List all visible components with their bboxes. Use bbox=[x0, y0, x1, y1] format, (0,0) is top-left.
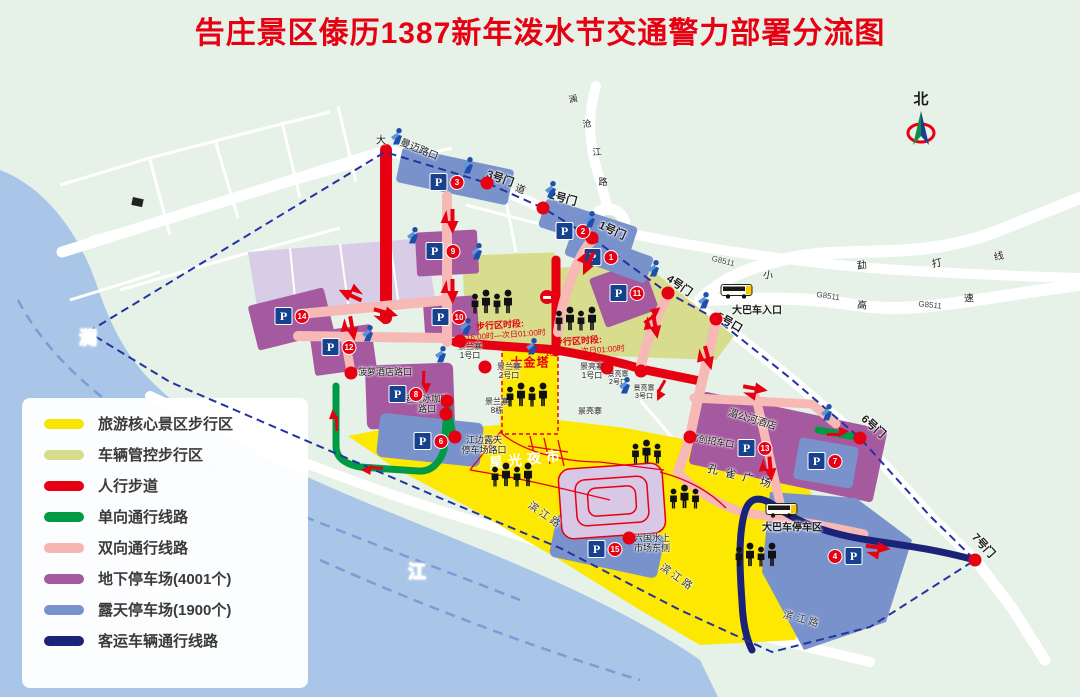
parking-number-badge: 15 bbox=[608, 542, 623, 557]
parking-sign-icon: P bbox=[430, 173, 448, 191]
parking-sign-icon: P bbox=[389, 385, 407, 403]
map-label: 打 bbox=[931, 258, 943, 271]
parking-marker-p4: P4 bbox=[828, 547, 863, 565]
checkpoint-dot bbox=[449, 431, 462, 444]
map-label: 滨江路 bbox=[658, 562, 696, 594]
parking-sign-icon: P bbox=[556, 222, 574, 240]
parking-marker-p15: P15 bbox=[588, 540, 623, 558]
map-label: 江边露天 停车场路口 bbox=[461, 435, 506, 455]
traffic-police-icon bbox=[617, 377, 633, 400]
pedestrian-crowd-icon bbox=[629, 440, 668, 471]
map-label: 高 bbox=[856, 300, 867, 312]
checkpoint-dot bbox=[684, 431, 697, 444]
parking-marker-p14: P14 bbox=[275, 307, 310, 325]
page-title: 告庄景区傣历1387新年泼水节交通警力部署分流图 bbox=[0, 8, 1080, 52]
map-label: 勐 bbox=[856, 260, 868, 273]
map-label: 速 bbox=[964, 293, 975, 305]
traffic-police-icon bbox=[582, 211, 598, 234]
checkpoint-dot bbox=[481, 177, 494, 190]
map-label: 六国水上 市场东侧 bbox=[634, 533, 670, 553]
legend-item: 单向通行线路 bbox=[30, 501, 302, 532]
pedestrian-crowd-icon bbox=[488, 463, 538, 494]
legend-swatch bbox=[44, 481, 84, 491]
map-label: 大巴车入口 bbox=[732, 305, 782, 316]
map-label: 景亮寨 bbox=[578, 408, 602, 417]
traffic-police-icon bbox=[469, 243, 485, 266]
map-label: G8511 bbox=[816, 291, 840, 303]
legend-swatch bbox=[44, 512, 84, 522]
traffic-police-icon bbox=[524, 338, 540, 361]
legend-label: 地下停车场(4001个) bbox=[98, 568, 231, 589]
map-label: 菠萝酒店路口 bbox=[358, 367, 412, 377]
map-label: 江 bbox=[592, 147, 602, 158]
bus-icon bbox=[720, 282, 754, 305]
map-label: 路 bbox=[598, 177, 607, 187]
map-label: G8511 bbox=[711, 255, 736, 269]
legend-swatch bbox=[44, 450, 84, 460]
pedestrian-crowd-icon bbox=[503, 383, 553, 414]
two-way-arrow-icon bbox=[738, 378, 772, 410]
map-canvas: 曼迈路口大道澜江澜沧江路G8511G8511G8511勐打线小高速滨江路滨江路滨… bbox=[0, 0, 1080, 697]
parking-number-badge: 14 bbox=[295, 309, 310, 324]
map-label: 澜 bbox=[79, 328, 97, 348]
parking-sign-icon: P bbox=[275, 307, 293, 325]
one-way-arrow-icon bbox=[414, 370, 435, 395]
parking-sign-icon: P bbox=[588, 540, 606, 558]
legend-label: 车辆管控步行区 bbox=[98, 444, 203, 465]
legend-label: 旅游核心景区步行区 bbox=[98, 413, 233, 434]
legend-item: 客运车辆通行线路 bbox=[30, 625, 302, 656]
two-way-arrow-icon bbox=[333, 271, 372, 308]
traffic-police-icon bbox=[405, 227, 421, 250]
legend-label: 露天停车场(1900个) bbox=[98, 599, 231, 620]
one-way-arrow-icon bbox=[326, 408, 347, 433]
pedestrian-crowd-icon bbox=[468, 290, 518, 321]
map-label: 滨江路 bbox=[782, 610, 823, 631]
parking-sign-icon: P bbox=[414, 432, 432, 450]
legend-swatch bbox=[44, 574, 84, 584]
legend-label: 单向通行线路 bbox=[98, 506, 188, 527]
legend-swatch bbox=[44, 419, 84, 429]
pedestrian-crowd-icon bbox=[732, 543, 782, 574]
checkpoint-dot bbox=[479, 361, 492, 374]
parking-number-badge: 9 bbox=[446, 244, 461, 259]
legend-swatch bbox=[44, 605, 84, 615]
map-label: 道 bbox=[513, 183, 526, 197]
map-label: 大 bbox=[376, 135, 386, 146]
legend: 旅游核心景区步行区车辆管控步行区人行步道单向通行线路双向通行线路地下停车场(40… bbox=[30, 408, 302, 656]
legend-label: 双向通行线路 bbox=[98, 537, 188, 558]
checkpoint-dot bbox=[662, 287, 675, 300]
legend-label: 客运车辆通行线路 bbox=[98, 630, 218, 651]
parking-number-badge: 13 bbox=[758, 441, 773, 456]
traffic-police-icon bbox=[543, 181, 559, 204]
parking-sign-icon: P bbox=[610, 284, 628, 302]
north-label: 北 bbox=[898, 88, 944, 109]
traffic-police-icon bbox=[646, 260, 662, 283]
parking-sign-icon: P bbox=[432, 308, 450, 326]
checkpoint-dot bbox=[635, 365, 648, 378]
parking-number-badge: 7 bbox=[828, 454, 843, 469]
map-label: 滨江路 bbox=[526, 500, 564, 532]
two-way-arrow-icon bbox=[750, 454, 780, 486]
compass-icon bbox=[901, 109, 941, 151]
legend-item: 地下停车场(4001个) bbox=[30, 563, 302, 594]
legend-swatch bbox=[44, 636, 84, 646]
legend-item: 双向通行线路 bbox=[30, 532, 302, 563]
legend-item: 旅游核心景区步行区 bbox=[30, 408, 302, 439]
parking-sign-icon: P bbox=[738, 439, 756, 457]
map-label: 湄公河酒店 bbox=[726, 407, 777, 432]
map-label: 澜 bbox=[568, 93, 579, 105]
two-way-arrow-icon bbox=[434, 207, 461, 237]
parking-marker-p11: P11 bbox=[610, 284, 645, 302]
parking-marker-p6: P6 bbox=[414, 432, 449, 450]
map-label: 线 bbox=[993, 250, 1005, 263]
traffic-police-icon bbox=[696, 292, 712, 315]
parking-sign-icon: P bbox=[808, 452, 826, 470]
map-label: 江 bbox=[408, 562, 426, 582]
checkpoint-dot bbox=[441, 395, 454, 408]
traffic-police-icon bbox=[433, 346, 449, 369]
legend-label: 人行步道 bbox=[98, 475, 158, 496]
checkpoint-dot bbox=[969, 554, 982, 567]
pedestrian-crowd-icon bbox=[667, 485, 706, 516]
two-way-arrow-icon bbox=[861, 538, 894, 569]
map-label: 小 bbox=[762, 270, 774, 283]
legend-item: 人行步道 bbox=[30, 470, 302, 501]
traffic-police-icon bbox=[460, 157, 476, 180]
north-indicator: 北 bbox=[898, 88, 944, 156]
traffic-police-icon bbox=[458, 318, 474, 341]
checkpoint-dot bbox=[345, 367, 358, 380]
parking-marker-p9: P9 bbox=[426, 242, 461, 260]
map-label: G8511 bbox=[918, 300, 942, 311]
parking-sign-icon: P bbox=[426, 242, 444, 260]
checkpoint-dot bbox=[854, 432, 867, 445]
checkpoint-dot bbox=[601, 362, 614, 375]
legend-swatch bbox=[44, 543, 84, 553]
map-label: 大巴车停车区 bbox=[762, 522, 822, 533]
one-way-arrow-icon bbox=[826, 424, 850, 444]
map-label: 景兰寨 2号口 bbox=[497, 363, 521, 381]
checkpoint-dot bbox=[440, 408, 453, 421]
parking-number-badge: 6 bbox=[434, 434, 449, 449]
two-way-arrow-icon bbox=[686, 342, 720, 378]
parking-number-badge: 11 bbox=[630, 286, 645, 301]
checkpoint-dot bbox=[623, 532, 636, 545]
legend-item: 车辆管控步行区 bbox=[30, 439, 302, 470]
two-way-arrow-icon bbox=[331, 313, 363, 347]
parking-sign-icon: P bbox=[845, 547, 863, 565]
bus-icon bbox=[765, 501, 799, 524]
parking-number-badge: 1 bbox=[604, 250, 619, 265]
parking-number-badge: 4 bbox=[828, 549, 843, 564]
legend-item: 露天停车场(1900个) bbox=[30, 594, 302, 625]
pedestrian-crowd-icon bbox=[552, 307, 602, 338]
gate-label: 1号门 bbox=[597, 219, 628, 242]
parking-marker-p7: P7 bbox=[808, 452, 843, 470]
two-way-arrow-icon bbox=[434, 277, 461, 307]
one-way-arrow-icon bbox=[359, 457, 385, 479]
traffic-police-icon bbox=[389, 128, 405, 151]
map-label: 沧 bbox=[582, 118, 592, 129]
no-entry-icon bbox=[540, 290, 554, 304]
